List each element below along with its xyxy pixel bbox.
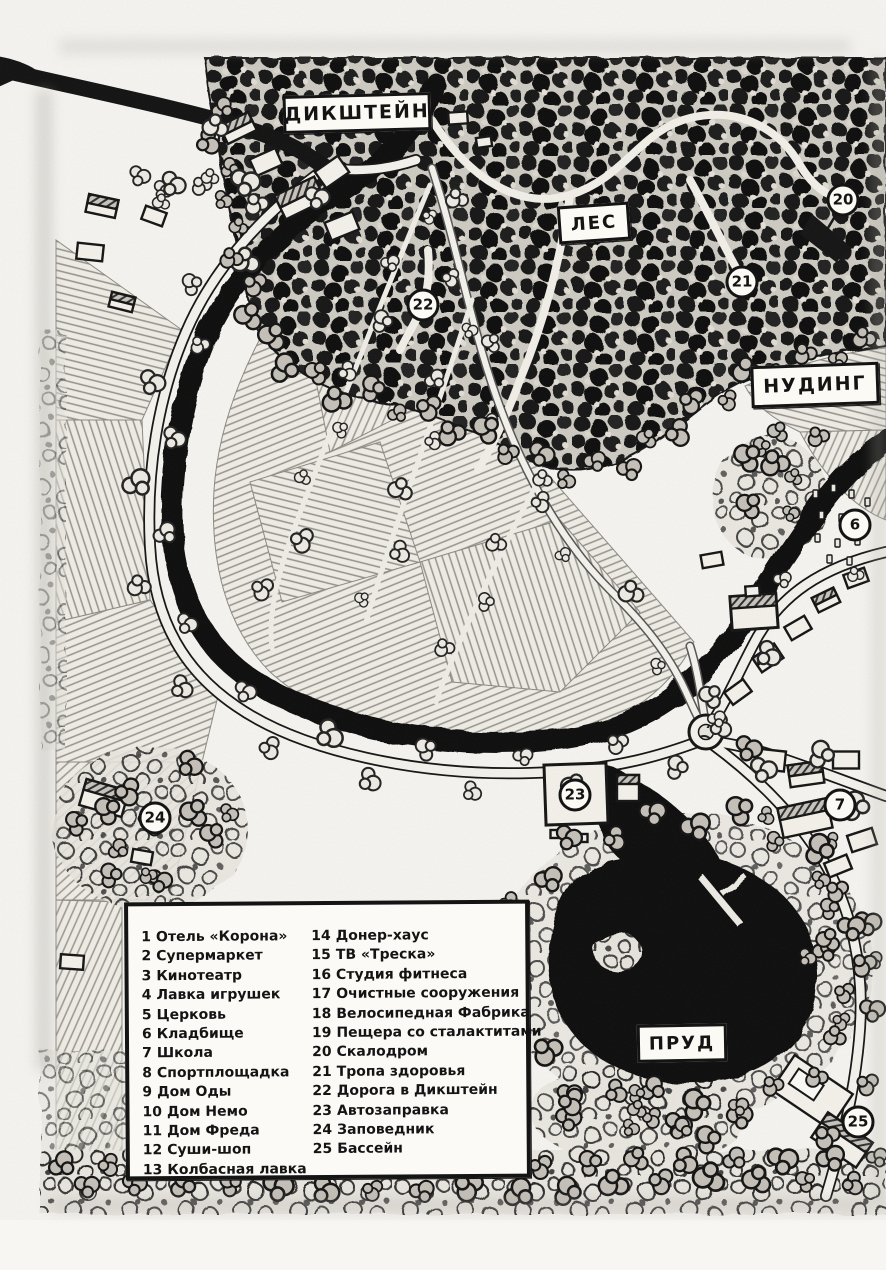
legend-item-number: 2 (141, 948, 151, 967)
legend-item-label: Заповедник (337, 1121, 434, 1138)
legend-item-number: 4 (142, 986, 152, 1005)
legend-item-label: Супермаркет (156, 948, 263, 965)
map-marker-21: 21 (726, 266, 759, 299)
legend-item-label: Колбасная лавка (167, 1161, 306, 1178)
legend-item-label: Кладбище (157, 1026, 244, 1043)
legend-item-label: Лавка игрушек (156, 987, 280, 1004)
place-label-nuding: НУДИНГ (750, 362, 879, 408)
legend-item: 14Донер-хаус (311, 926, 541, 947)
legend-item: 8Спортплощадка (142, 1063, 312, 1084)
legend-item: 7Школа (142, 1044, 312, 1065)
legend-item-label: Пещера со сталактитами (336, 1024, 541, 1041)
legend-item: 9Дом Оды (142, 1082, 312, 1103)
legend-item-label: Велосипедная Фабрика (336, 1004, 530, 1021)
legend-item-number: 22 (312, 1082, 332, 1102)
legend-item-number: 14 (311, 927, 331, 947)
legend-item: 11Дом Фреда (143, 1121, 313, 1142)
legend-item: 25Бассейн (313, 1139, 543, 1160)
legend-item-number: 3 (141, 967, 151, 986)
legend-item-number: 12 (143, 1142, 163, 1162)
legend-item-number: 13 (143, 1161, 163, 1181)
legend-item: 22Дорога в Дикштейн (312, 1081, 542, 1102)
legend-item: 10Дом Немо (142, 1102, 312, 1123)
legend-item: 23Автозаправка (312, 1100, 542, 1121)
place-label-dikstein: ДИКШТЕЙН (283, 92, 432, 134)
legend-item: 15ТВ «Треска» (311, 945, 541, 966)
legend-item-number: 1 (141, 928, 151, 947)
legend-item: 12Суши-шоп (143, 1141, 313, 1162)
legend-item: 1Отель «Корона» (141, 927, 311, 948)
legend-columns: 1Отель «Корона»2Супермаркет3Кинотеатр4Ла… (141, 926, 523, 1181)
legend-item-number: 23 (312, 1102, 332, 1122)
legend-item-number: 10 (142, 1103, 162, 1123)
legend-item-label: Скалодром (337, 1044, 429, 1061)
legend-item: 3Кинотеатр (141, 966, 311, 987)
map-marker-22: 22 (407, 289, 440, 322)
map-page: ДИКШТЕЙН ЛЕС НУДИНГ ПРУД 20 21 22 6 7 23… (0, 0, 886, 1270)
legend-item-number: 8 (142, 1064, 152, 1083)
legend-item-label: Спортплощадка (157, 1064, 290, 1081)
legend-item-number: 9 (142, 1083, 152, 1102)
legend-column-2: 14Донер-хаус15ТВ «Треска»16Студия фитнес… (311, 926, 542, 1180)
legend-item: 5Церковь (142, 1005, 312, 1026)
map-legend: 1Отель «Корона»2Супермаркет3Кинотеатр4Ла… (124, 900, 531, 1181)
legend-item: 2Супермаркет (141, 947, 311, 968)
legend-item-label: Церковь (157, 1006, 226, 1022)
legend-item: 18Велосипедная Фабрика (312, 1003, 542, 1024)
legend-item: 20Скалодром (312, 1042, 542, 1063)
legend-item: 21Тропа здоровья (312, 1061, 542, 1082)
legend-item-number: 19 (312, 1024, 332, 1044)
legend-item-label: Очистные сооружения (336, 985, 519, 1002)
legend-item-label: Дом Фреда (167, 1123, 260, 1140)
legend-item-number: 5 (142, 1006, 152, 1025)
legend-item-label: Бассейн (337, 1141, 403, 1157)
legend-item: 17Очистные сооружения (312, 984, 542, 1005)
map-marker-23: 23 (559, 779, 592, 812)
place-label-forest: ЛЕС (557, 202, 631, 245)
legend-item-label: Дорога в Дикштейн (337, 1082, 498, 1099)
legend-item-number: 18 (312, 1005, 332, 1025)
legend-column-1: 1Отель «Корона»2Супермаркет3Кинотеатр4Ла… (141, 927, 313, 1180)
legend-item-label: Дом Немо (167, 1103, 248, 1120)
map-marker-7: 7 (824, 789, 857, 822)
legend-item: 24Заповедник (313, 1120, 543, 1141)
legend-item: 6Кладбище (142, 1024, 312, 1045)
legend-item-number: 24 (313, 1121, 333, 1141)
legend-item: 16Студия фитнеса (311, 964, 541, 985)
map-marker-20: 20 (827, 184, 860, 217)
legend-item-number: 21 (312, 1063, 332, 1083)
legend-item-label: Донер-хаус (336, 927, 429, 944)
legend-item-label: Кинотеатр (156, 967, 242, 984)
legend-item-number: 17 (312, 985, 332, 1005)
legend-item-label: Автозаправка (337, 1102, 449, 1119)
legend-item-number: 7 (142, 1045, 152, 1064)
legend-item-label: Тропа здоровья (337, 1063, 466, 1080)
legend-item: 4Лавка игрушек (142, 985, 312, 1006)
legend-item-label: Отель «Корона» (156, 928, 288, 945)
legend-item-number: 11 (143, 1122, 163, 1142)
map-marker-24: 24 (139, 802, 172, 835)
legend-item-label: Студия фитнеса (336, 966, 467, 983)
legend-item-label: Школа (157, 1045, 213, 1061)
legend-item-number: 6 (142, 1025, 152, 1044)
legend-item-number: 20 (312, 1043, 332, 1063)
legend-item: 13Колбасная лавка (143, 1160, 313, 1181)
map-marker-25: 25 (842, 1106, 875, 1139)
place-label-pond: ПРУД (637, 1023, 728, 1063)
legend-item-number: 15 (311, 946, 331, 966)
legend-item-number: 16 (311, 966, 331, 986)
legend-item-number: 25 (313, 1140, 333, 1160)
legend-item-label: ТВ «Треска» (336, 947, 436, 964)
legend-item-label: Суши-шоп (167, 1142, 251, 1159)
legend-item: 19Пещера со сталактитами (312, 1023, 542, 1044)
map-marker-6: 6 (839, 509, 872, 542)
legend-item-label: Дом Оды (157, 1084, 231, 1101)
